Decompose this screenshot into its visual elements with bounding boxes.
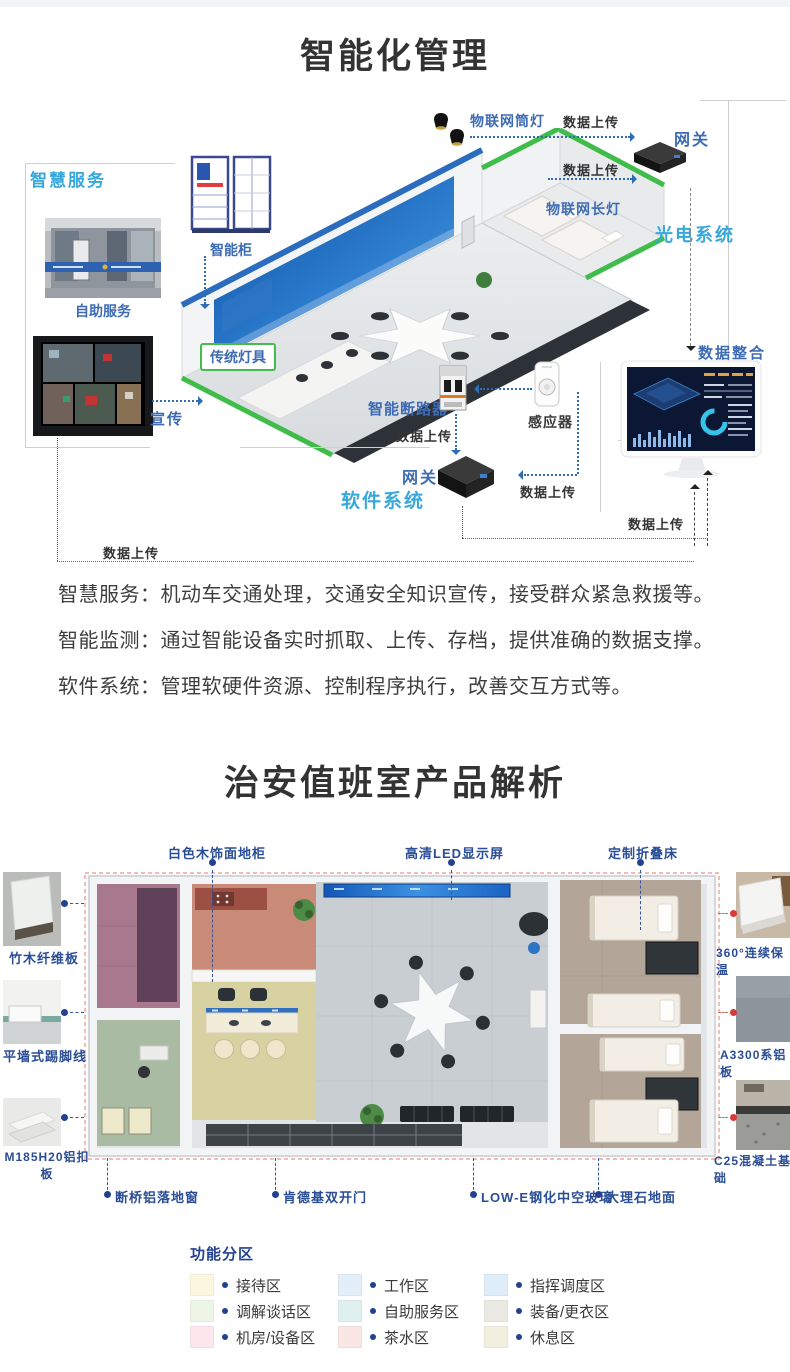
paragraph-smart-service: 智慧服务：机动车交通处理，交通安全知识宣传，接受群众紧急救援等。 bbox=[58, 572, 748, 618]
line-bamboo-fiber-board bbox=[70, 903, 84, 904]
data-upload-label-6: 数据上传 bbox=[628, 514, 684, 533]
section2-title: 治安值班室产品解析 bbox=[0, 755, 790, 806]
sensor-to-gateway-line bbox=[524, 474, 577, 476]
legend-label-command: 指挥调度区 bbox=[530, 1275, 605, 1296]
dot-flush-skirting bbox=[61, 1009, 68, 1016]
line-aluminum-gusset bbox=[70, 1117, 84, 1118]
breaker-down-line bbox=[455, 414, 457, 450]
smart-breaker-device bbox=[432, 362, 474, 414]
video-wall-photo bbox=[33, 336, 153, 436]
bracket-monitor-v bbox=[600, 362, 601, 512]
self-service-label: 自助服务 bbox=[45, 301, 161, 321]
publicity-label: 宣传 bbox=[150, 408, 184, 429]
sensor-device bbox=[533, 360, 561, 408]
riser-door bbox=[275, 1158, 276, 1190]
label-continuous-insulation: 360°连续保温 bbox=[716, 944, 790, 978]
bullet-icon bbox=[370, 1334, 376, 1340]
line-continuous-insulation bbox=[718, 913, 728, 914]
line-c25-concrete bbox=[718, 1117, 728, 1118]
label-aluminum-gusset: M185H20铝扣板 bbox=[0, 1148, 94, 1182]
legend-label-machine-room: 机房/设备区 bbox=[236, 1327, 315, 1348]
smart-service-label: 智慧服务 bbox=[30, 166, 106, 191]
bracket-right-h-top bbox=[700, 100, 786, 101]
data-upload-label-3: 数据上传 bbox=[396, 426, 452, 445]
callout-floor-cabinet: 白色木饰面地柜 bbox=[168, 843, 266, 862]
label-lowe-glass: LOW-E钢化中空玻璃 bbox=[481, 1187, 613, 1206]
publicity-arrow-line bbox=[152, 400, 198, 402]
label-bamboo-fiber-board: 竹木纤维板 bbox=[2, 948, 86, 967]
dashboard-monitor bbox=[620, 360, 764, 482]
photo-c25-concrete bbox=[736, 1080, 790, 1150]
swatch-rest bbox=[484, 1326, 508, 1348]
line-flush-skirting bbox=[70, 1012, 84, 1013]
bullet-icon bbox=[370, 1308, 376, 1314]
upload-arrow-2 bbox=[548, 178, 632, 180]
label-a3300-aluminum: A3300系铝板 bbox=[720, 1046, 790, 1080]
bullet-icon bbox=[516, 1334, 522, 1340]
bullet-icon bbox=[222, 1308, 228, 1314]
bed bbox=[600, 1038, 684, 1071]
riser-marble bbox=[598, 1158, 599, 1190]
legend-label-work: 工作区 bbox=[384, 1275, 429, 1296]
cabinet-link-line bbox=[204, 256, 206, 304]
dot-a3300-aluminum bbox=[730, 1009, 737, 1016]
legend-item-selfservice: 自助服务区 bbox=[338, 1300, 484, 1322]
integration-feed-line bbox=[690, 188, 691, 346]
legend-label-reception: 接待区 bbox=[236, 1275, 281, 1296]
gateway-riser bbox=[462, 506, 463, 538]
data-upload-label-2: 数据上传 bbox=[563, 160, 619, 179]
legend-item-equipment: 装备/更衣区 bbox=[484, 1300, 654, 1322]
downlight-icon bbox=[432, 112, 468, 150]
swatch-selfservice bbox=[338, 1300, 362, 1322]
gateway-bottom-label: 网关 bbox=[402, 464, 438, 488]
callout-line-folding-bed bbox=[640, 870, 641, 930]
swatch-mediation bbox=[190, 1300, 214, 1322]
monitor-up-arrowhead-1 bbox=[690, 484, 700, 489]
section1-paragraphs: 智慧服务：机动车交通处理，交通安全知识宣传，接受群众紧急救援等。 智能监测：通过… bbox=[58, 572, 748, 710]
dot-aluminum-gusset bbox=[61, 1114, 68, 1121]
line-a3300-aluminum bbox=[718, 1012, 728, 1013]
dot-continuous-insulation bbox=[730, 910, 737, 917]
bullet-icon bbox=[370, 1282, 376, 1288]
sensor-to-gateway-arrowhead bbox=[518, 470, 523, 480]
bracket-mid-h-bottom bbox=[240, 447, 430, 448]
right-bus-line bbox=[462, 538, 708, 539]
legend-item-machine-room: 机房/设备区 bbox=[190, 1326, 338, 1348]
publicity-arrowhead bbox=[198, 396, 203, 406]
section1-title: 智能化管理 bbox=[0, 28, 790, 79]
legend-label-tea: 茶水区 bbox=[384, 1327, 429, 1348]
cabinet-link-arrowhead bbox=[200, 304, 210, 309]
monitor-up-arrowhead-2 bbox=[703, 470, 713, 475]
smart-cabinet-image bbox=[188, 155, 274, 235]
bed bbox=[590, 1100, 678, 1142]
paragraph-smart-monitoring: 智能监测：通过智能设备实时抓取、上传、存档，提供准确的数据支撑。 bbox=[58, 618, 748, 664]
swatch-equipment bbox=[484, 1300, 508, 1322]
dot-glass bbox=[470, 1191, 477, 1198]
iot-downlight-label: 物联网筒灯 bbox=[470, 111, 545, 131]
label-flush-skirting: 平墙式踢脚线 bbox=[0, 1046, 90, 1065]
swatch-machine-room bbox=[190, 1326, 214, 1348]
data-upload-label-1: 数据上传 bbox=[563, 112, 619, 131]
label-marble-floor: 大理石地面 bbox=[606, 1187, 676, 1206]
callout-dot-floor-cabinet bbox=[209, 859, 216, 866]
optoelectronic-system-label: 光电系统 bbox=[655, 221, 735, 247]
legend-label-equipment: 装备/更衣区 bbox=[530, 1301, 609, 1322]
photo-bamboo-fiber-board bbox=[3, 872, 61, 946]
self-service-photo bbox=[45, 218, 161, 298]
gateway-top-device bbox=[630, 139, 690, 177]
videowall-riser bbox=[57, 438, 58, 561]
upload-arrow-1 bbox=[470, 136, 630, 138]
top-strip bbox=[0, 0, 790, 7]
paragraph-software-system: 软件系统：管理软硬件资源、控制程序执行，改善交互方式等。 bbox=[58, 664, 748, 710]
legend-item-mediation: 调解谈话区 bbox=[190, 1300, 338, 1322]
monitor-up-line-2 bbox=[707, 478, 708, 546]
bracket-left-h-bottom bbox=[25, 447, 150, 448]
callout-dot-led-screen bbox=[448, 859, 455, 866]
bullet-icon bbox=[222, 1282, 228, 1288]
data-upload-label-4: 数据上传 bbox=[520, 482, 576, 501]
label-kfc-double-door: 肯德基双开门 bbox=[283, 1187, 367, 1206]
photo-flush-skirting bbox=[3, 980, 61, 1044]
bed bbox=[590, 896, 678, 940]
callout-dot-folding-bed bbox=[637, 859, 644, 866]
page: 智能化管理 bbox=[0, 0, 790, 1372]
swatch-command bbox=[484, 1274, 508, 1296]
sensor-label: 感应器 bbox=[528, 412, 573, 432]
photo-continuous-insulation bbox=[736, 872, 790, 938]
bullet-icon bbox=[222, 1334, 228, 1340]
upload-arrowhead-2 bbox=[632, 174, 637, 184]
swatch-work bbox=[338, 1274, 362, 1296]
sensor-riser-line bbox=[577, 392, 579, 474]
gateway-bottom-device bbox=[434, 450, 498, 504]
bracket-left-h-top bbox=[25, 163, 175, 164]
iot-long-light-label: 物联网长灯 bbox=[546, 199, 621, 219]
callout-line-floor-cabinet bbox=[212, 870, 213, 982]
legend-item-tea: 茶水区 bbox=[338, 1326, 484, 1348]
riser-window bbox=[107, 1158, 108, 1190]
traditional-light-label: 传统灯具 bbox=[200, 343, 276, 371]
callout-led-screen: 高清LED显示屏 bbox=[405, 843, 504, 862]
legend-item-rest: 休息区 bbox=[484, 1326, 654, 1348]
sensor-to-breaker-line bbox=[480, 388, 532, 390]
legend-grid: 接待区 工作区 指挥调度区 调解谈话区 自助服务区 装备/更衣区 bbox=[190, 1272, 654, 1350]
floor-plan-render bbox=[82, 866, 722, 1162]
legend-label-rest: 休息区 bbox=[530, 1327, 575, 1348]
dot-window bbox=[104, 1191, 111, 1198]
swatch-tea bbox=[338, 1326, 362, 1348]
photo-a3300-aluminum bbox=[736, 976, 790, 1042]
data-upload-label-5: 数据上传 bbox=[103, 543, 159, 562]
legend-title: 功能分区 bbox=[190, 1243, 654, 1264]
bed bbox=[588, 994, 680, 1027]
label-c25-concrete: C25混凝土基础 bbox=[714, 1152, 790, 1186]
legend-item-command: 指挥调度区 bbox=[484, 1274, 654, 1296]
dot-bamboo-fiber-board bbox=[61, 900, 68, 907]
smart-cabinet-label: 智能柜 bbox=[188, 240, 274, 260]
dot-door bbox=[272, 1191, 279, 1198]
software-system-label: 软件系统 bbox=[341, 486, 425, 513]
legend-label-selfservice: 自助服务区 bbox=[384, 1301, 459, 1322]
label-broken-bridge-window: 断桥铝落地窗 bbox=[115, 1187, 199, 1206]
function-zones-legend: 功能分区 接待区 工作区 指挥调度区 调解谈话区 自助服务区 bbox=[190, 1243, 654, 1350]
bullet-icon bbox=[516, 1282, 522, 1288]
legend-label-mediation: 调解谈话区 bbox=[236, 1301, 311, 1322]
dot-c25-concrete bbox=[730, 1114, 737, 1121]
riser-glass bbox=[473, 1158, 474, 1190]
dot-marble bbox=[595, 1191, 602, 1198]
swatch-reception bbox=[190, 1274, 214, 1296]
bullet-icon bbox=[516, 1308, 522, 1314]
callout-line-led-screen bbox=[451, 870, 452, 900]
legend-item-reception: 接待区 bbox=[190, 1274, 338, 1296]
photo-aluminum-gusset bbox=[3, 1098, 61, 1146]
legend-item-work: 工作区 bbox=[338, 1274, 484, 1296]
sensor-to-breaker-arrowhead bbox=[474, 384, 479, 394]
bracket-left-v bbox=[25, 163, 26, 448]
integration-arrowhead bbox=[686, 346, 696, 351]
